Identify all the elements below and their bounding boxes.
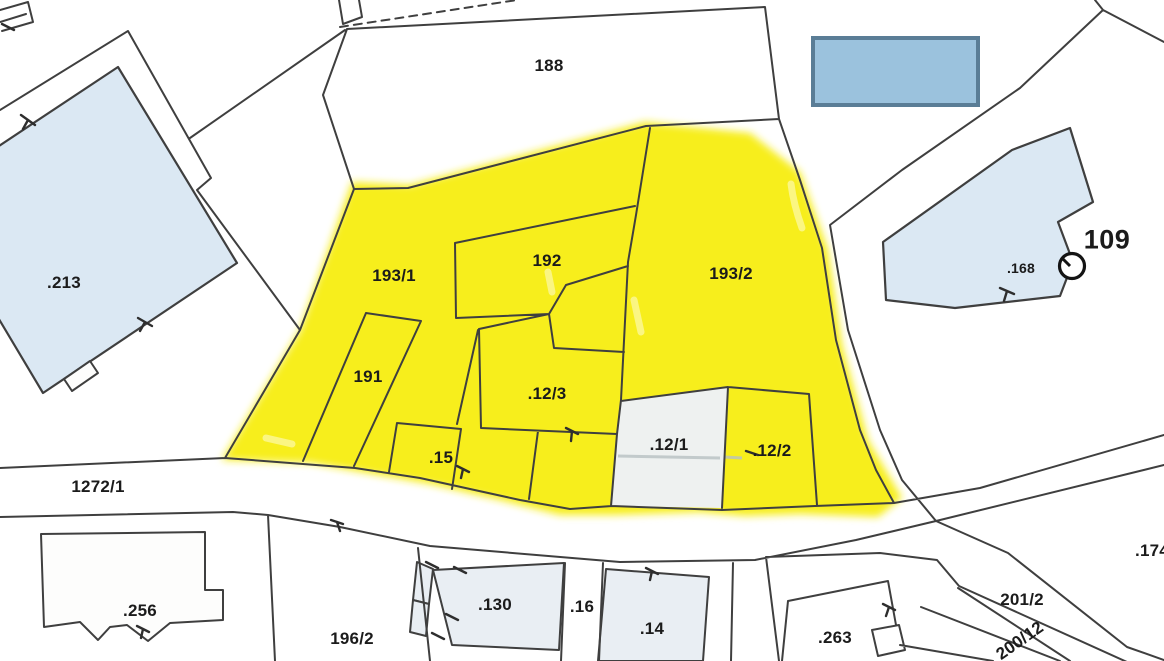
parcel-label-168: .168 bbox=[1007, 260, 1035, 276]
parcel-label-263: .263 bbox=[818, 628, 852, 648]
selection-marker[interactable] bbox=[813, 38, 978, 105]
building-256 bbox=[41, 532, 223, 641]
parcel-label-14: .14 bbox=[640, 619, 664, 639]
parcel-label-193-1: 193/1 bbox=[372, 266, 416, 286]
building-213 bbox=[0, 67, 237, 393]
building-14 bbox=[598, 569, 709, 661]
parcel-label-1272-1: 1272/1 bbox=[71, 477, 124, 497]
parcel-label-193-2: 193/2 bbox=[709, 264, 753, 284]
parcel-label-213: .213 bbox=[47, 273, 81, 293]
parcel-label-188: 188 bbox=[535, 56, 564, 76]
control-point-icon bbox=[1060, 254, 1085, 279]
dashed-boundary bbox=[340, 0, 517, 27]
parcel-label-201-2: 201/2 bbox=[1000, 590, 1044, 610]
parcel-label-12-3: .12/3 bbox=[528, 384, 567, 404]
cadastral-map[interactable]: 188 193/1 192 193/2 191 .12/3 .15 .12/1 … bbox=[0, 0, 1164, 661]
building-168 bbox=[883, 128, 1093, 308]
parcel-label-256: .256 bbox=[123, 601, 157, 621]
parcel-label-130: .130 bbox=[478, 595, 512, 615]
parcel-label-192: 192 bbox=[533, 251, 562, 271]
parcel-label-16: .16 bbox=[570, 597, 594, 617]
parcel-label-12-1: .12/1 bbox=[650, 435, 689, 455]
parcel-label-174: .174 bbox=[1135, 541, 1164, 561]
parcel-label-15: .15 bbox=[429, 448, 453, 468]
parcel-label-196-2: 196/2 bbox=[330, 629, 374, 649]
parcel-label-12-2: .12/2 bbox=[753, 441, 792, 461]
point-label-109: 109 bbox=[1084, 225, 1131, 256]
parcel-label-191: 191 bbox=[354, 367, 383, 387]
map-drawing bbox=[0, 0, 1164, 661]
